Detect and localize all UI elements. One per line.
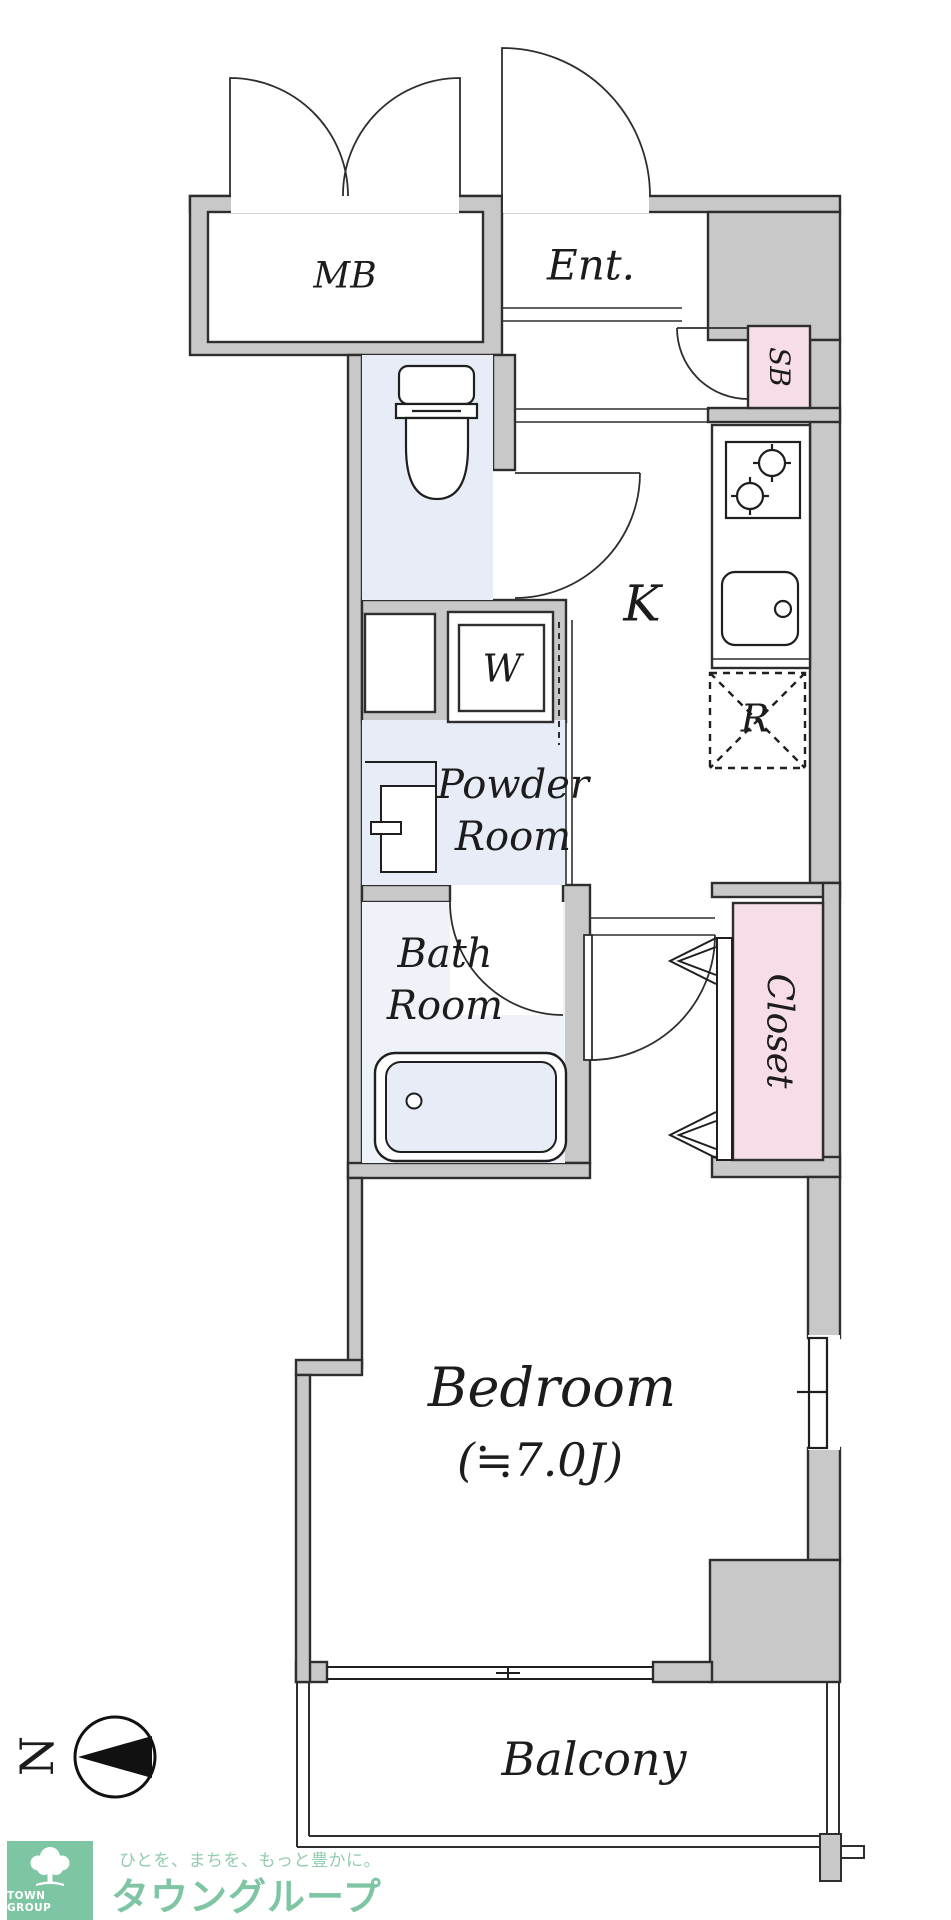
sink-icon [722, 572, 798, 645]
entrance-door-opening [503, 194, 649, 213]
balcony-window [327, 1667, 653, 1679]
bedroom-door [584, 918, 715, 1060]
label-shoe-box: SB [761, 347, 797, 387]
compass-north-label: N [8, 1736, 68, 1776]
label-kitchen: K [623, 572, 660, 637]
entrance-door [502, 48, 650, 196]
entrance-step [502, 308, 682, 321]
closet-doors [670, 938, 732, 1160]
town-group-logo: TOWN GROUP [7, 1841, 93, 1920]
compass-icon [75, 1717, 155, 1797]
pipe-space-box [365, 614, 435, 712]
label-powder-room: PowderRoom [437, 759, 589, 863]
label-entrance: Ent. [547, 239, 635, 294]
bathtub-icon [375, 1053, 566, 1161]
hall-door [515, 473, 640, 598]
label-mb: MB [313, 254, 376, 301]
stove-icon [726, 442, 800, 518]
mb-doors [230, 78, 460, 196]
logo-text: TOWN GROUP [7, 1890, 93, 1914]
logo-brand-name: タウングループ [111, 1866, 382, 1920]
label-balcony: Balcony [501, 1730, 686, 1790]
balcony-divider [820, 1834, 841, 1881]
label-washer: W [482, 644, 521, 693]
label-closet: Closet [755, 974, 802, 1089]
label-bath-room: BathRoom [387, 928, 503, 1032]
mb-door-opening [231, 194, 459, 213]
label-bedroom: Bedroom [428, 1353, 676, 1423]
balcony-divider-tick [841, 1846, 864, 1858]
label-refrigerator: R [741, 694, 770, 743]
bedroom-side-window [797, 1335, 840, 1450]
label-bedroom-size: (≒7.0J) [457, 1431, 623, 1491]
tree-icon [24, 1844, 76, 1890]
floorplan-page: MB Ent. SB K W R PowderRoom BathRoom Clo… [0, 0, 951, 1920]
kitchen-boundary-lines [515, 409, 710, 422]
